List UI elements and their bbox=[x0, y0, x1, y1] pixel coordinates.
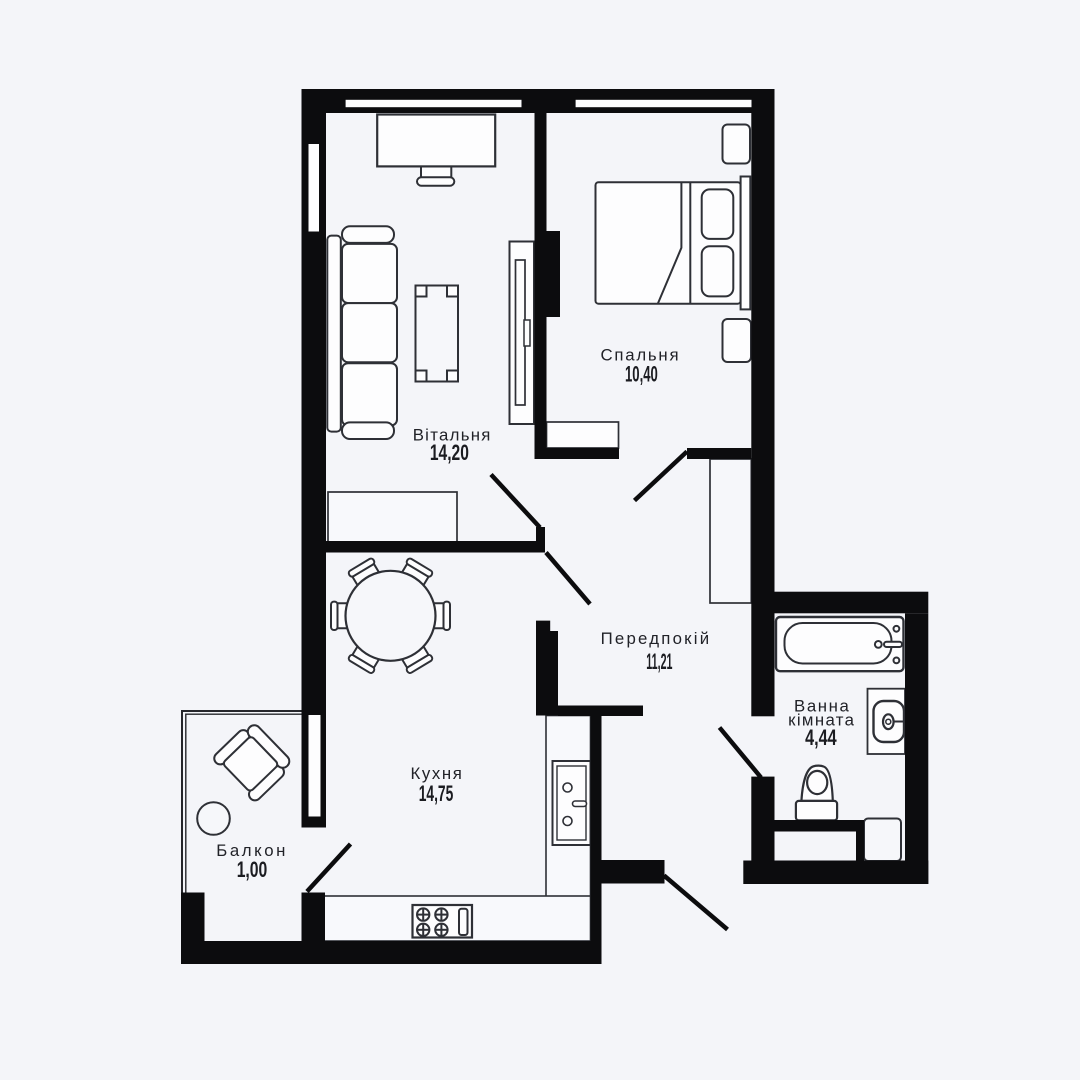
svg-text:14,20: 14,20 bbox=[430, 440, 469, 465]
svg-text:14,75: 14,75 bbox=[419, 781, 454, 806]
svg-text:10,40: 10,40 bbox=[625, 362, 658, 387]
svg-text:11,21: 11,21 bbox=[646, 649, 672, 674]
svg-text:4,44: 4,44 bbox=[805, 725, 837, 750]
svg-text:1,00: 1,00 bbox=[237, 857, 268, 882]
svg-text:Передпокій: Передпокій bbox=[601, 629, 710, 648]
